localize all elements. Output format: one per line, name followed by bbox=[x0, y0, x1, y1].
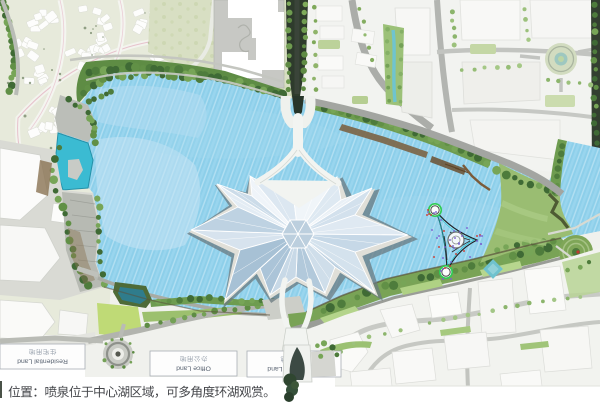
svg-text:Residential Land: Residential Land bbox=[17, 358, 68, 365]
svg-text:Office Land: Office Land bbox=[176, 365, 211, 372]
